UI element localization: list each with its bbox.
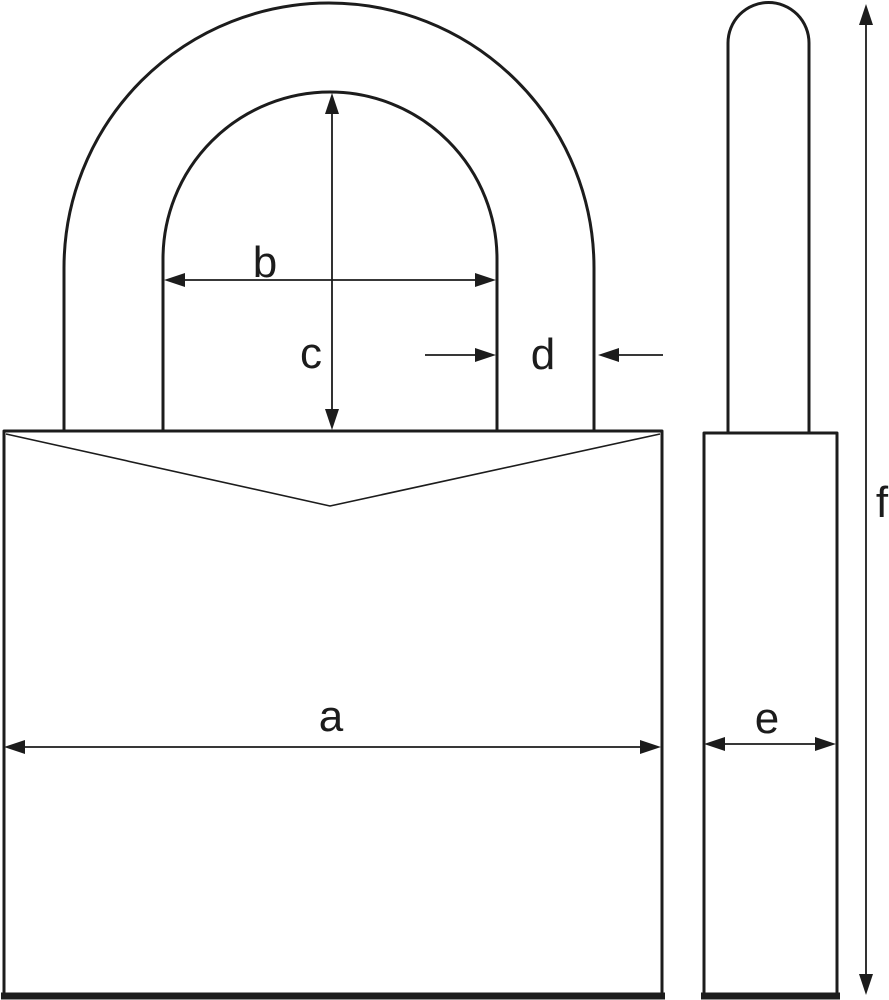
arrowhead-left-icon bbox=[598, 348, 619, 362]
arrowhead-up-icon bbox=[859, 4, 873, 25]
dimension-d: d bbox=[425, 330, 663, 379]
arrowhead-right-icon bbox=[475, 348, 496, 362]
dimension-label-a: a bbox=[319, 692, 344, 741]
shackle-outer-contour-front bbox=[64, 3, 594, 432]
arrowhead-down-icon bbox=[859, 974, 873, 995]
dimension-label-d: d bbox=[531, 330, 555, 379]
dimension-label-e: e bbox=[755, 694, 779, 743]
dimension-e: e bbox=[704, 694, 836, 751]
dimension-a: a bbox=[4, 692, 661, 754]
dimension-label-f: f bbox=[876, 478, 889, 527]
front-view bbox=[1, 3, 665, 996]
arrowhead-up-icon bbox=[325, 93, 339, 114]
dimension-f: f bbox=[859, 4, 889, 995]
shackle-outline-side bbox=[728, 2, 809, 433]
dimension-b: b bbox=[164, 238, 496, 287]
arrowhead-right-icon bbox=[640, 740, 661, 754]
shackle-inner-contour-front bbox=[163, 92, 497, 432]
side-view bbox=[701, 2, 840, 996]
arrowhead-right-icon bbox=[815, 737, 836, 751]
padlock-dimension-diagram: b c d a e bbox=[0, 0, 889, 1000]
diagram-canvas: b c d a e bbox=[0, 0, 889, 1000]
arrowhead-down-icon bbox=[325, 409, 339, 430]
dimension-c: c bbox=[300, 93, 339, 430]
arrowhead-left-icon bbox=[704, 737, 725, 751]
arrowhead-right-icon bbox=[475, 273, 496, 287]
arrowhead-left-icon bbox=[164, 273, 185, 287]
dimension-label-c: c bbox=[300, 329, 322, 378]
dimension-label-b: b bbox=[253, 238, 277, 287]
arrowhead-left-icon bbox=[4, 740, 25, 754]
body-chamfer-notch bbox=[6, 434, 660, 506]
